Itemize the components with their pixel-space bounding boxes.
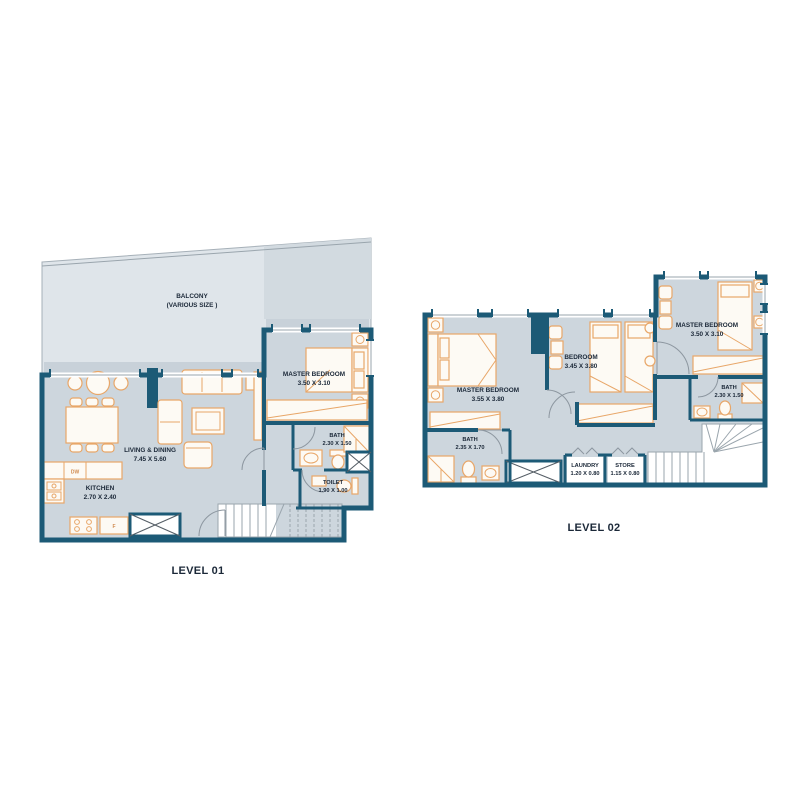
toilet-dims: 1.90 X 1.00 xyxy=(318,488,347,494)
level-01-plan: F DW xyxy=(42,238,374,577)
wardrobe-icon xyxy=(267,400,367,420)
bath-dims: 2.30 X 1.50 xyxy=(322,441,351,447)
level1-title: LEVEL 01 xyxy=(172,565,225,577)
coffee-table-icon xyxy=(192,408,224,434)
fridge-icon: F xyxy=(100,517,128,534)
bath-right-dims: 2.30 X 1.50 xyxy=(714,393,743,399)
shower-icon xyxy=(742,383,763,403)
bath-label: BATH xyxy=(329,433,344,439)
living-dining-dims: 7.45 X 5.60 xyxy=(134,456,167,463)
toilet-label: TOILET xyxy=(323,480,344,486)
master-bedroom-dims: 3.50 X 3.10 xyxy=(298,380,331,387)
master-bedroom-right-label: MASTER BEDROOM xyxy=(676,322,738,329)
floorplan-canvas: F DW xyxy=(0,0,800,800)
store-dims: 1.15 X 0.80 xyxy=(610,471,639,477)
master-bedroom-left-label: MASTER BEDROOM xyxy=(457,387,519,394)
bath-toilet-icon xyxy=(461,461,476,483)
laundry-label: LAUNDRY xyxy=(571,463,599,469)
shaft-icon xyxy=(130,514,180,536)
shower-icon xyxy=(344,426,369,452)
dining-table-icon xyxy=(66,398,118,452)
floorplan-drawing: F DW xyxy=(0,0,800,800)
master-bedroom-right-dims: 3.50 X 3.10 xyxy=(691,331,724,338)
shaft-icon xyxy=(347,452,371,472)
fridge-label: F xyxy=(112,524,115,530)
master-bedroom-label: MASTER BEDROOM xyxy=(283,371,345,378)
balcony-covered-area xyxy=(264,238,371,319)
shower-icon xyxy=(428,456,454,482)
bath-left-dims: 2.35 X 1.70 xyxy=(455,445,484,451)
bath-sink-icon xyxy=(300,450,322,466)
wardrobe-icon xyxy=(693,356,763,374)
armchair-icon xyxy=(184,442,212,468)
shaft-icon xyxy=(506,461,561,483)
laundry-dims: 1.20 X 0.80 xyxy=(570,471,599,477)
bath-left-label: BATH xyxy=(462,437,477,443)
bedroom-dims: 3.45 X 3.80 xyxy=(565,363,598,370)
desk-chairs-icon xyxy=(659,286,672,329)
bath-right-label: BATH xyxy=(721,385,736,391)
kitchen-dims: 2.70 X 2.40 xyxy=(84,494,117,501)
balcony-dims: (VARIOUS SIZE ) xyxy=(167,302,218,309)
bath-sink-icon xyxy=(694,406,710,418)
tv-console-icon xyxy=(254,372,262,440)
master-bedroom-left-dims: 3.55 X 3.80 xyxy=(472,396,505,403)
wardrobe-icon xyxy=(430,412,500,429)
store-label: STORE xyxy=(615,463,635,469)
bath-sink-icon xyxy=(482,466,499,480)
kitchen-label: KITCHEN xyxy=(86,485,115,492)
dishwasher-label: DW xyxy=(71,470,80,476)
wardrobe-icon xyxy=(577,404,653,423)
level-02-plan: MASTER BEDROOM 3.55 X 3.80 BEDROOM 3.45 … xyxy=(425,271,768,534)
desk-chairs-icon xyxy=(549,326,563,369)
balcony-label: BALCONY xyxy=(176,293,208,300)
living-dining-label: LIVING & DINING xyxy=(124,447,176,454)
level2-title: LEVEL 02 xyxy=(568,522,621,534)
bath-toilet-icon xyxy=(718,401,732,419)
bedroom-label: BEDROOM xyxy=(564,354,597,361)
stove-icon xyxy=(70,517,97,534)
